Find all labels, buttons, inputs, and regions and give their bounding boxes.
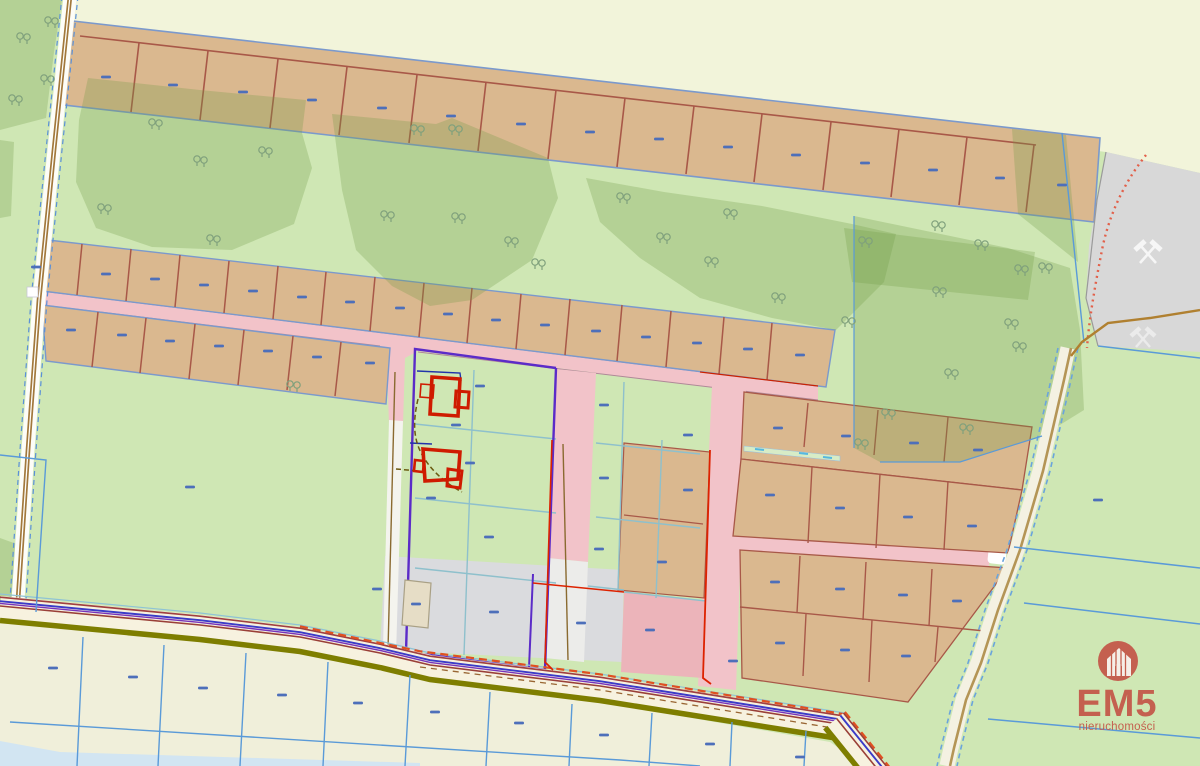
svg-text:nieruchomości: nieruchomości xyxy=(1079,721,1156,733)
svg-text:EM5: EM5 xyxy=(1076,683,1157,725)
